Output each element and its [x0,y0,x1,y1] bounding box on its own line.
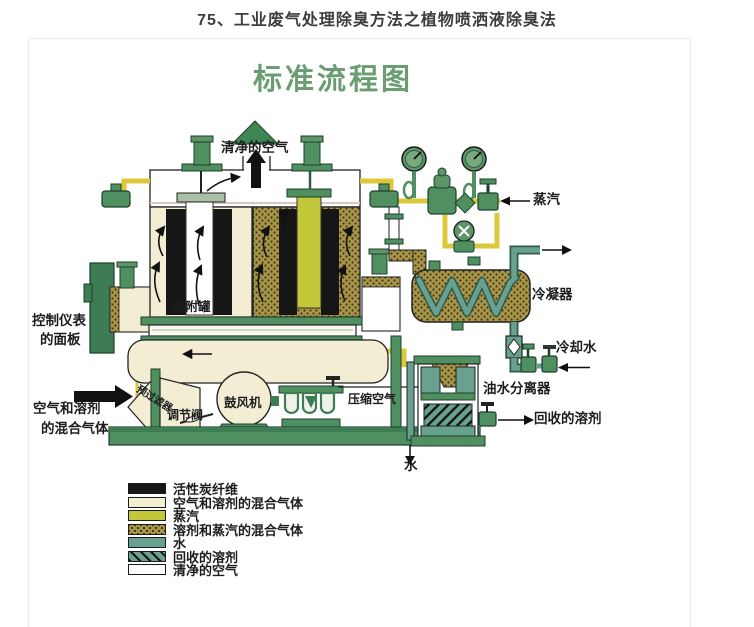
legend-swatch-steam [128,510,166,521]
cooling-water-arrow-icon [558,363,568,372]
steam-regulator-station [385,168,530,253]
outlet-arrow-icon [562,245,572,255]
label-adsorption-tank: 吸附罐 [173,300,211,314]
label-oil-water-separator: 油水分离器 [483,381,551,397]
legend-label: 溶剂和蒸汽的混合气体 [173,520,303,539]
legend-swatch-water [128,537,166,548]
label-regulating-valve: 调节阀 [167,409,203,423]
legend-swatch-activated-carbon [128,483,166,494]
label-water: 水 [404,458,418,474]
recovered-solvent-arrow-icon [524,415,534,425]
legend-swatch-air-solvent-mix [128,497,166,508]
legend-row-clean-air: 清净的空气 [128,564,303,575]
legend: 活性炭纤维 空气和溶剂的混合气体 蒸汽 溶剂和蒸汽的混合气体 水 回收的溶剂 清… [128,483,303,575]
label-clean-air: 清净的空气 [221,140,289,156]
lower-ducting [128,317,388,383]
page: 75、工业废气处理除臭方法之植物喷洒液除臭法 标准流程图 [0,0,754,627]
label-recovered-solvent: 回收的溶剂 [534,411,602,427]
label-steam: 蒸汽 [533,192,560,208]
legend-swatch-clean-air [128,564,166,575]
label-control-panel: 控制仪表 的面板 [32,311,86,349]
process-flow-diagram [0,0,754,627]
legend-label: 清净的空气 [173,560,238,579]
legend-swatch-solvent-steam-mix [128,524,166,535]
label-cooling-water: 冷却水 [556,340,597,356]
legend-row-solvent-steam-mix: 溶剂和蒸汽的混合气体 [128,524,303,535]
legend-swatch-recovered-solvent [128,551,166,562]
label-inlet-mixture: 空气和溶剂 的混合气体 [33,399,109,439]
label-compressed-air: 压缩空气 [348,393,396,407]
legend-row-air-solvent-mix: 空气和溶剂的混合气体 [128,497,303,508]
label-blower: 鼓风机 [224,396,262,410]
label-condenser: 冷凝器 [532,287,573,303]
steam-arrow-icon [500,197,510,206]
